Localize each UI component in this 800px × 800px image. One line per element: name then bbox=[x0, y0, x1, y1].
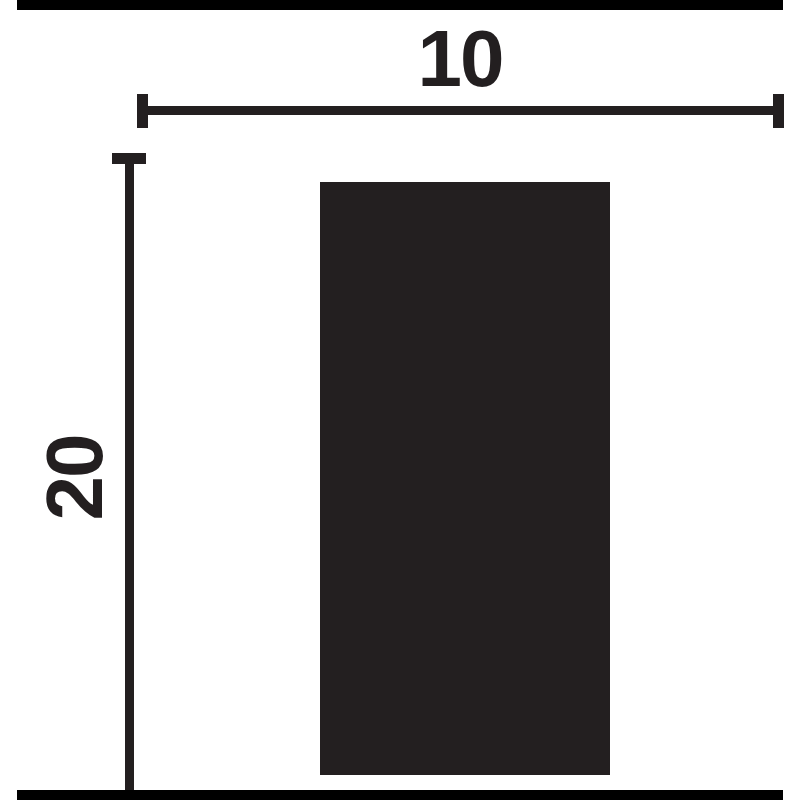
profile-cross-section bbox=[320, 182, 610, 775]
width-dimension-line bbox=[137, 106, 784, 115]
width-dimension-tick-left bbox=[137, 94, 148, 128]
bottom-border-bar bbox=[17, 790, 783, 800]
profile-dimension-diagram: 10 20 bbox=[0, 0, 800, 800]
height-dimension-label: 20 bbox=[35, 436, 115, 521]
width-dimension-tick-right bbox=[773, 94, 784, 128]
height-dimension-line bbox=[125, 153, 134, 800]
width-dimension-label: 10 bbox=[418, 19, 503, 99]
height-dimension-tick-top bbox=[112, 153, 146, 164]
top-border-bar bbox=[17, 0, 783, 10]
